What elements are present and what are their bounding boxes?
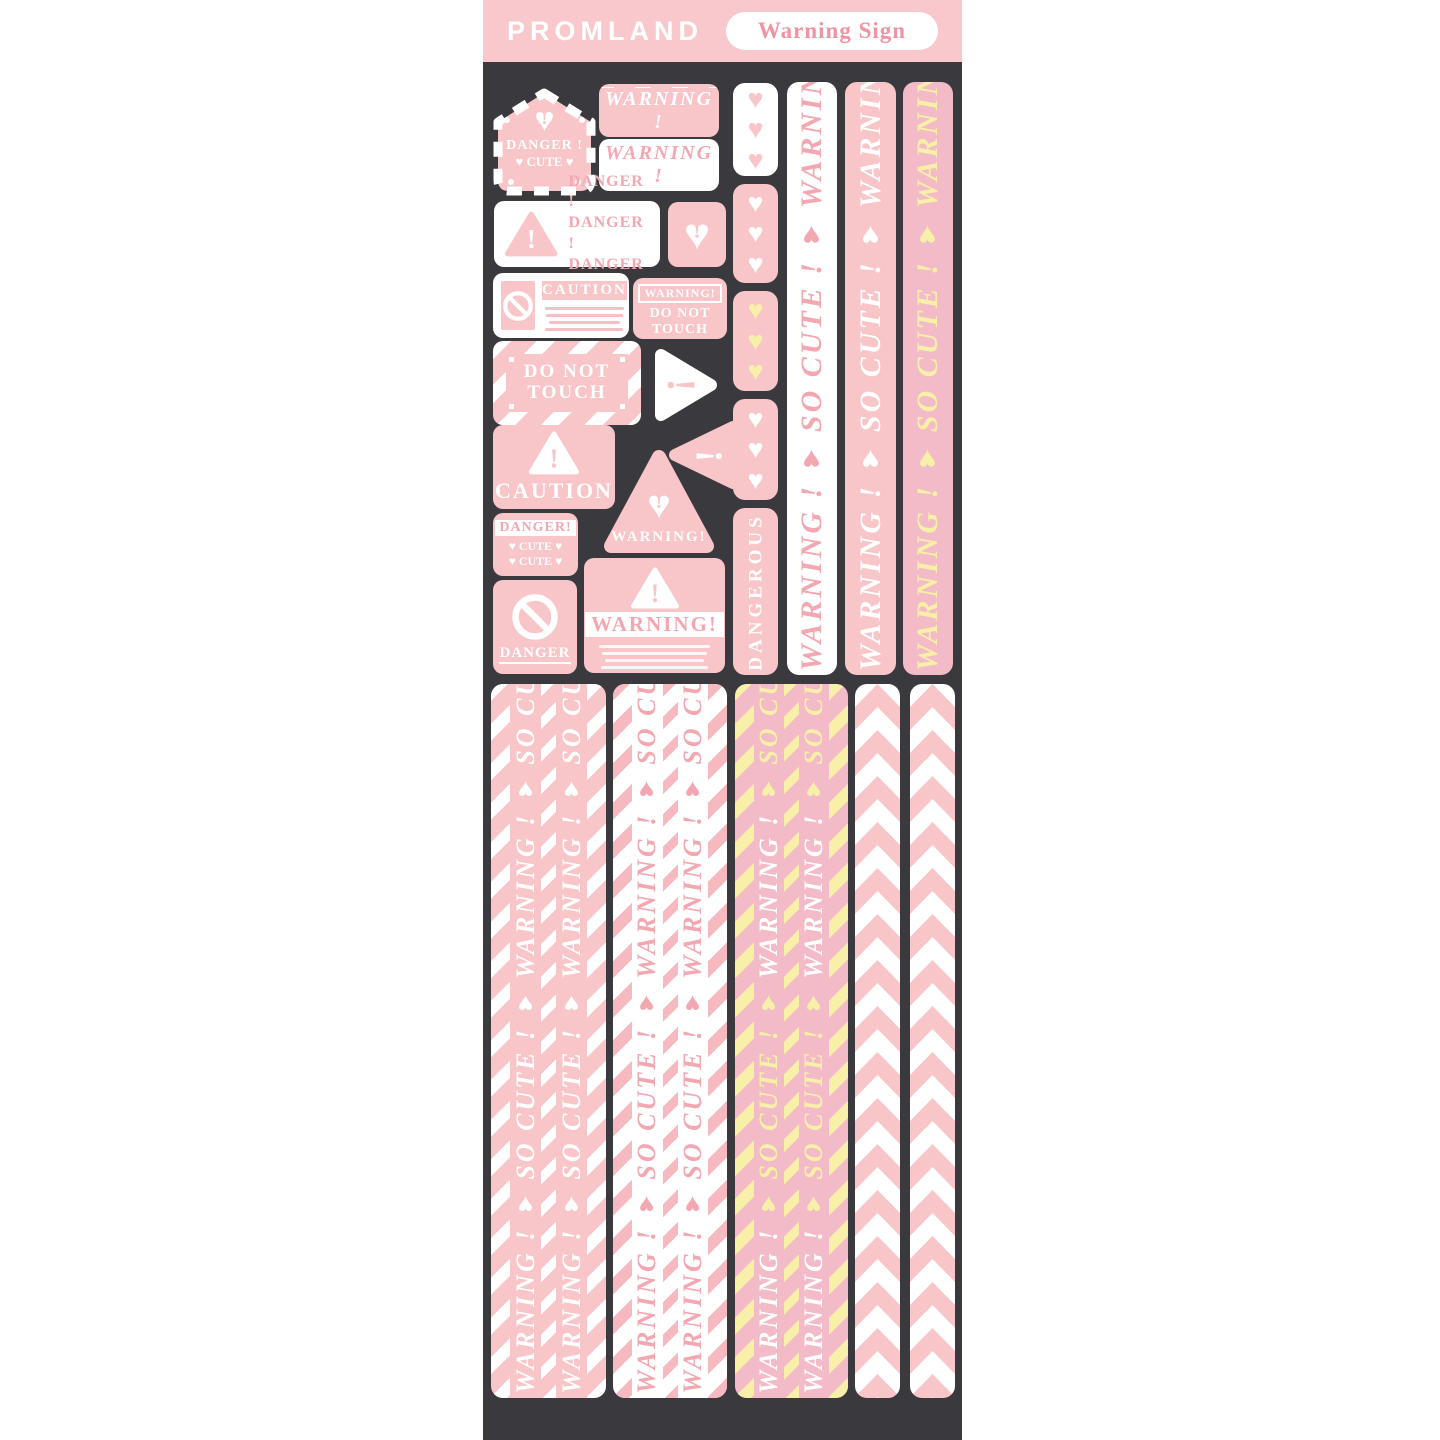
danger-label: DANGER <box>499 645 570 664</box>
hazard-stripes <box>735 684 754 1398</box>
fine-print-line <box>605 659 704 662</box>
heart-exclamation-icon: ♥ ! <box>647 485 671 525</box>
hazard-stripes <box>587 684 606 1398</box>
sticker-hearts-strip: ♥♥♥ <box>733 184 778 283</box>
warning-label: WARNING! <box>611 529 706 546</box>
warning-label: WARNING ! <box>599 88 719 134</box>
sticker-tape-rosy: WARNING !♥SO CUTE !♥WARNING !♥SO CUTE !♥… <box>735 684 848 1398</box>
heart-icon: ♥ <box>747 357 763 385</box>
sticker-heart-exclamation: ♥ ! <box>668 202 726 267</box>
warning-triangle-icon: ! <box>525 430 583 476</box>
sticker-tape-chevron <box>910 684 955 1398</box>
caution-title: CAUTION <box>495 478 613 504</box>
no-entry-block <box>501 281 535 330</box>
corner-dot <box>509 357 514 362</box>
hazard-stripes <box>829 684 848 1398</box>
danger-line: DANGER ! <box>569 172 650 214</box>
sticker-warning-striped-pink: WARNING ! <box>599 84 719 137</box>
triangle-right-icon: ! <box>649 345 721 425</box>
corner-dot <box>509 404 514 409</box>
do-not-touch-panel: DO NOT TOUCH <box>506 354 628 412</box>
sticker-warning-strip-yellow: WARNING !♥SO CUTE !♥WARNING !♥SO CUTE !♥… <box>903 82 953 675</box>
heart-icon: ♥ <box>747 189 763 217</box>
sticker-hearts-strip: ♥♥♥ <box>733 83 778 176</box>
touch-label: TOUCH <box>527 383 606 404</box>
sticker-caution-pink: ! CAUTION <box>493 425 615 509</box>
sticker-tape-white: WARNING !♥SO CUTE !♥WARNING !♥SO CUTE !♥… <box>613 684 727 1398</box>
do-not-label: DO NOT <box>650 306 711 322</box>
heart-icon: ♥ <box>747 435 763 463</box>
fine-print-line <box>549 321 620 324</box>
sheet-board: ♥ ! DANGER ! ♥ CUTE ♥ WARNING ! WARNING … <box>483 62 962 1440</box>
heart-icon: ♥ <box>747 296 763 324</box>
heart-icon: ♥ <box>747 466 763 494</box>
heart-exclamation-icon: ♥ ! <box>684 213 710 257</box>
caution-title: CAUTION <box>542 281 627 300</box>
heart-icon: ♥ <box>747 327 763 355</box>
fine-print-line <box>599 645 710 648</box>
heart-icon: ♥ <box>747 85 763 113</box>
svg-text:!: ! <box>549 444 558 474</box>
warning-triangle-icon: ! <box>504 209 559 259</box>
hazard-dashes <box>541 684 556 1398</box>
svg-text:!: ! <box>659 378 704 391</box>
no-entry-icon <box>509 591 561 643</box>
sticker-hearts-strip: ♥♥♥ <box>733 291 778 391</box>
sticker-danger-cute: DANGER! ♥ CUTE ♥ ♥ CUTE ♥ <box>493 513 578 576</box>
sticker-warning-do-not-touch: WARNING! DO NOT TOUCH <box>633 278 727 339</box>
fine-print-line <box>545 328 623 331</box>
heart-icon: ♥ <box>747 219 763 247</box>
cute-line: ♥ CUTE ♥ <box>509 539 563 554</box>
heart-icon: ♥ <box>747 405 763 433</box>
no-entry-icon <box>501 289 535 323</box>
corner-dot <box>620 404 625 409</box>
heart-icon: ♥ <box>747 146 763 174</box>
sticker-sheet-image: PROMLAND Warning Sign ♥ ! DANGER ! ♥ CUT… <box>0 0 1440 1440</box>
sticker-warning-strip-white: WARNING !♥SO CUTE !♥WARNING !♥SO CUTE !♥… <box>787 82 837 675</box>
hazard-dashes <box>784 684 799 1398</box>
danger-title: DANGER! <box>495 520 575 536</box>
title-badge: Warning Sign <box>726 12 938 50</box>
danger-line: DANGER ! <box>569 213 650 255</box>
brand-logo: PROMLAND <box>483 16 703 47</box>
tag-danger-label: DANGER ! <box>506 138 583 154</box>
tag-cute-label: ♥ CUTE ♥ <box>515 154 573 170</box>
sticker-warning-big: ! WARNING! <box>584 558 725 673</box>
sticker-tape-pink: WARNING !♥SO CUTE !♥WARNING !♥SO CUTE !♥… <box>491 684 606 1398</box>
touch-label: TOUCH <box>652 322 708 338</box>
chevron-pattern-icon <box>910 684 955 1398</box>
sticker-warning-triangle: ♥ ! WARNING! <box>601 447 717 556</box>
sticker-danger-noentry: DANGER <box>493 580 577 674</box>
dangerous-label: DANGEROUS <box>746 513 765 670</box>
fine-print-line <box>602 652 706 655</box>
sticker-warning-strip-pink: WARNING !♥SO CUTE !♥WARNING !♥SO CUTE !♥… <box>845 82 896 675</box>
sticker-dangerous-strip: DANGEROUS <box>733 508 778 675</box>
warning-triangle-icon: ! <box>625 566 685 610</box>
svg-text:!: ! <box>650 579 659 608</box>
hazard-stripes <box>599 134 719 135</box>
heart-exclamation-icon: ♥ ! <box>534 104 554 138</box>
svg-text:!: ! <box>527 224 536 254</box>
sticker-do-not-touch: DO NOT TOUCH <box>493 341 641 425</box>
chevron-pattern-icon <box>855 684 900 1398</box>
warning-label: WARNING! <box>585 612 724 637</box>
fine-print-line <box>601 666 707 669</box>
hazard-stripes <box>613 684 632 1398</box>
cute-line: ♥ CUTE ♥ <box>509 554 563 569</box>
sticker-sheet: PROMLAND Warning Sign ♥ ! DANGER ! ♥ CUT… <box>483 0 962 1440</box>
hazard-stripes <box>708 684 727 1398</box>
sheet-header: PROMLAND Warning Sign <box>483 0 962 62</box>
corner-dot <box>620 357 625 362</box>
sticker-hearts-strip: ♥♥♥ <box>733 399 778 500</box>
fine-print-line <box>546 314 622 317</box>
sticker-caution-card: CAUTION <box>493 273 629 338</box>
hazard-dashes <box>663 684 678 1398</box>
heart-icon: ♥ <box>747 250 763 278</box>
do-not-label: DO NOT <box>524 362 610 383</box>
heart-icon: ♥ <box>747 115 763 143</box>
sticker-tape-chevron <box>855 684 900 1398</box>
fine-print-line <box>545 307 625 310</box>
sticker-triangle-right: ! <box>649 345 721 425</box>
hazard-stripes <box>491 684 510 1398</box>
sticker-danger-triple: ! DANGER ! DANGER ! DANGER ! <box>494 201 660 267</box>
warning-badge: WARNING! <box>638 284 721 303</box>
